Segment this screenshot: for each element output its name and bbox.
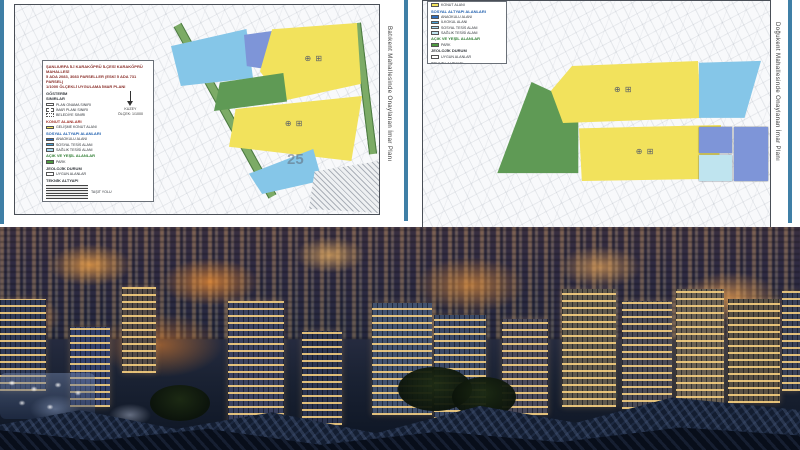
road-section-symbol: TAŞIT YOLU xyxy=(46,184,150,199)
zoning-plans-band: ⊕ ⊞ ⊕ ⊞ 25 ŞANLIURFA İLİ KARAKÖPRÜ İLÇES… xyxy=(0,0,800,227)
legend-item-label: GELİŞME KONUT ALANI xyxy=(56,125,97,129)
legend-item-label: İLKOKUL ALANI xyxy=(441,20,467,24)
legend-title-line: 1/1000 ÖLÇEKLİ UYGULAMA İMAR PLANI xyxy=(46,84,150,89)
legend-section-heading: SOSYAL ALTYAPI ALANLARI xyxy=(431,10,503,15)
apartment-tower xyxy=(782,291,800,391)
legend-item-label: PARK xyxy=(56,160,66,164)
legend-item-label: ANAOKULU ALANI xyxy=(56,137,87,141)
parcel-social-facility-periwinkle-large xyxy=(734,127,768,181)
legend-item-label: UYGUN ALANLAR xyxy=(441,55,471,59)
north-arrow: KUZEY ÖLÇEK: 1/1000 xyxy=(118,91,143,116)
zoning-symbol-icon: ⊕ ⊞ xyxy=(614,85,633,94)
legend-section-heading: JEOLOJİK DURUM xyxy=(46,167,150,172)
legend-swatch xyxy=(431,21,439,25)
legend-box-right: KONUT ALANI SOSYAL ALTYAPI ALANLARI ANAO… xyxy=(427,1,507,64)
legend-swatch xyxy=(46,138,54,142)
apartment-tower xyxy=(622,301,672,409)
legend-item-label: İMAR PLANI SINIRI xyxy=(56,108,88,112)
legend-item-label: SOSYAL TESİS ALANI xyxy=(441,26,478,30)
legend-item-label: SOSYAL TESİS ALANI xyxy=(56,143,93,147)
legend-section-heading: JEOLOJİK DURUM xyxy=(431,49,503,54)
vertical-caption-right: Doğukent Mahallesinde Onaylanan İmar Pla… xyxy=(774,22,780,161)
north-arrow-icon xyxy=(130,91,131,101)
parcel-residential-yellow-top: ⊕ ⊞ xyxy=(551,61,701,123)
legend-item-label: PARK xyxy=(441,43,451,47)
legend-section-heading: TEKNİK ALTYAPI xyxy=(431,62,503,64)
legend-swatch xyxy=(46,113,54,117)
legend-swatch xyxy=(431,15,439,19)
legend-item-label: ANAOKULU ALANI xyxy=(441,15,472,19)
legend-swatch xyxy=(431,3,439,7)
legend-item-label: TAŞIT YOLU xyxy=(91,190,112,194)
legend-section-heading: TEKNİK ALTYAPI xyxy=(46,179,150,184)
accent-divider-right xyxy=(788,0,792,223)
apartment-tower xyxy=(122,287,156,373)
legend-swatch xyxy=(431,26,439,30)
zoning-symbol-icon: ⊕ ⊞ xyxy=(636,147,655,156)
north-label: KUZEY xyxy=(118,107,143,111)
legend-swatch xyxy=(46,160,54,164)
screenshot-root: ⊕ ⊞ ⊕ ⊞ 25 ŞANLIURFA İLİ KARAKÖPRÜ İLÇES… xyxy=(0,0,800,450)
plan-sheet-right: ⊕ ⊞ ⊕ ⊞ KONUT ALANI SOSYAL ALTYAPI ALANL… xyxy=(420,0,772,230)
legend-item-label: PLAN ONAMA SINIRI xyxy=(56,103,91,107)
parcel-health-cyan xyxy=(699,155,732,181)
legend-item-label: UYGUN ALANLAR xyxy=(56,172,86,176)
map-frame-left: ⊕ ⊞ ⊕ ⊞ 25 ŞANLIURFA İLİ KARAKÖPRÜ İLÇES… xyxy=(14,4,380,215)
legend-swatch xyxy=(46,126,54,130)
legend-box-left: ŞANLIURFA İLİ KARAKÖPRÜ İLÇESİ KARAKÖPRÜ… xyxy=(42,60,154,202)
tree-silhouette xyxy=(150,385,210,421)
legend-item-label: SAĞLIK TESİSİ ALANI xyxy=(56,148,93,152)
road-section-symbol: YAYA YOLU xyxy=(46,200,150,202)
zoning-symbol-icon: ⊕ ⊞ xyxy=(304,54,323,63)
legend-item-label: BELEDİYE SINIRI xyxy=(56,113,85,117)
parcel-social-facility-periwinkle xyxy=(699,127,732,153)
legend-section-heading: AÇIK VE YEŞİL ALANLAR xyxy=(431,37,503,42)
zoning-symbol-icon: ⊕ ⊞ xyxy=(285,119,304,128)
map-frame-right: ⊕ ⊞ ⊕ ⊞ KONUT ALANI SOSYAL ALTYAPI ALANL… xyxy=(422,0,771,230)
legend-swatch xyxy=(46,108,54,112)
north-arrow-icon xyxy=(127,101,133,106)
apartment-tower xyxy=(728,299,780,403)
apartment-tower xyxy=(302,331,342,425)
night-cityscape-photo xyxy=(0,227,800,450)
apartment-tower xyxy=(228,301,284,429)
legend-item-label: KONUT ALANI xyxy=(441,3,465,7)
legend-swatch xyxy=(46,148,54,152)
legend-swatch xyxy=(46,103,54,107)
legend-section-heading: KONUT ALANLARI xyxy=(46,120,150,125)
plan-sheet-left: ⊕ ⊞ ⊕ ⊞ 25 ŞANLIURFA İLİ KARAKÖPRÜ İLÇES… xyxy=(8,2,386,224)
apartment-tower xyxy=(676,289,724,405)
scale-watermark: 25 xyxy=(287,151,304,168)
legend-title-line: ŞANLIURFA İLİ KARAKÖPRÜ İLÇESİ KARAKÖPRÜ… xyxy=(46,64,150,74)
legend-swatch xyxy=(431,31,439,35)
apartment-tower xyxy=(562,289,616,407)
legend-swatch xyxy=(46,143,54,147)
scale-label: ÖLÇEK: 1/1000 xyxy=(118,112,143,116)
legend-swatch xyxy=(431,43,439,47)
legend-section-heading: SOSYAL ALTYAPI ALANLARI xyxy=(46,132,150,137)
legend-title-line: 5 ADA 2083, 3083 PARSELLER (ESKİ 5 ADA 7… xyxy=(46,74,150,84)
legend-swatch xyxy=(46,172,54,176)
vertical-caption-left: Batıkent Mahallesinde Onaylanan İmar Pla… xyxy=(386,26,392,162)
accent-divider-middle xyxy=(404,0,408,221)
legend-swatch xyxy=(431,55,439,59)
accent-divider-left xyxy=(0,0,4,224)
legend-section-heading: AÇIK VE YEŞİL ALANLAR xyxy=(46,154,150,159)
legend-item-label: SAĞLIK TESİSİ ALANI xyxy=(441,31,478,35)
